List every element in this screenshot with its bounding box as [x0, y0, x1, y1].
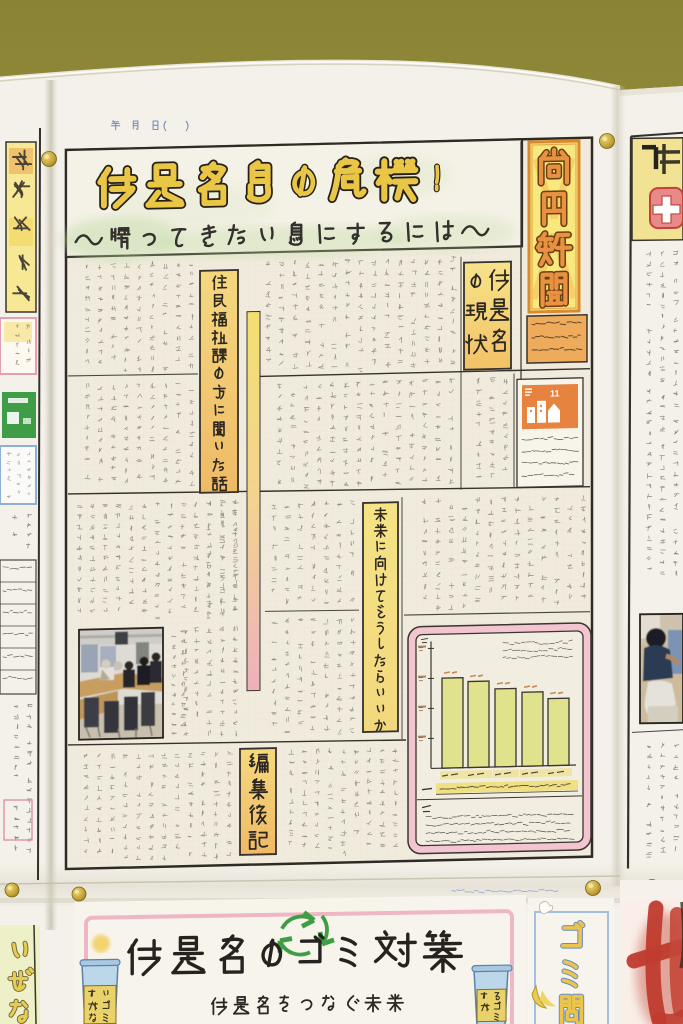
svg-text:11: 11: [550, 388, 560, 398]
